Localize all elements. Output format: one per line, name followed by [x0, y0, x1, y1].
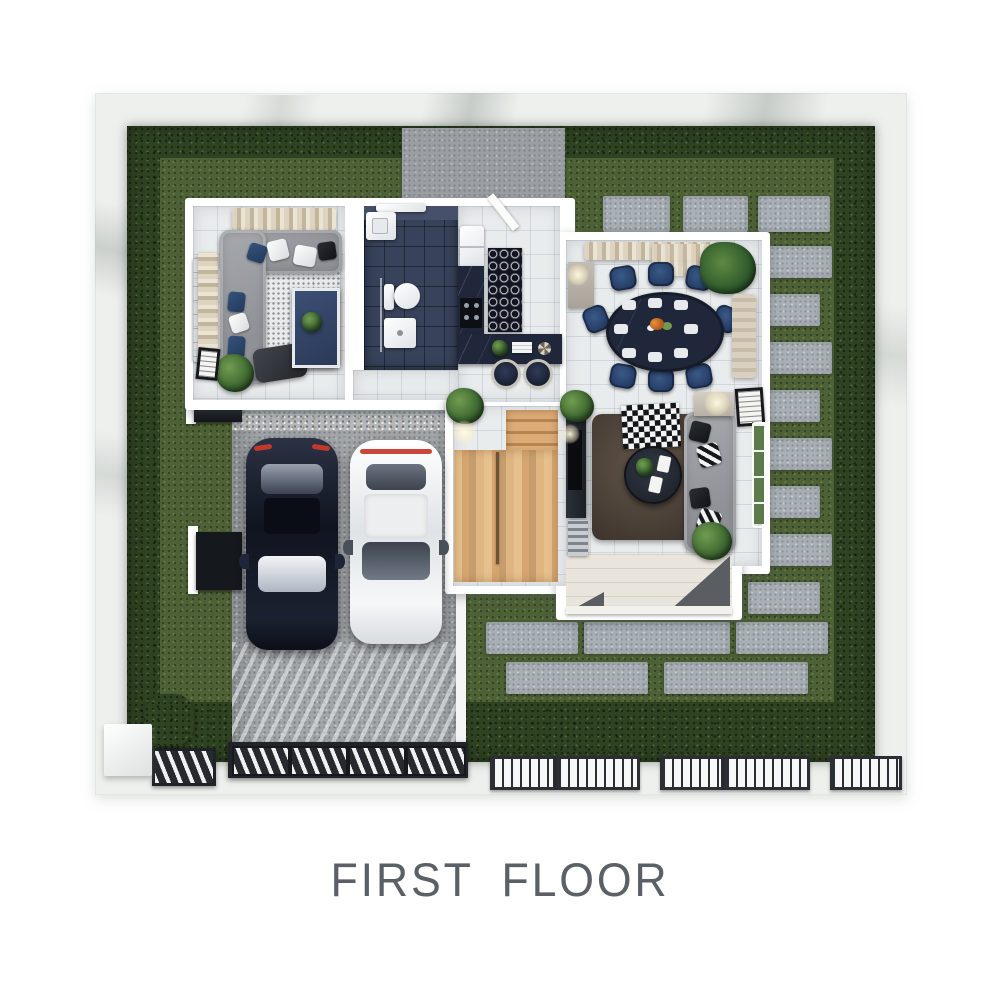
porch-step [566, 606, 732, 614]
place-setting [622, 300, 636, 310]
palm-plant [700, 242, 756, 294]
dining-chair [648, 262, 674, 286]
coffee-table-plant [302, 312, 322, 332]
garden-paver [486, 622, 578, 654]
wall-sheen [420, 93, 520, 129]
gate-panel [290, 746, 348, 776]
wall-sheen [873, 300, 907, 410]
pedestrian-gate [152, 748, 216, 786]
fence-panel [660, 756, 724, 790]
kitchen-runner-rug [488, 248, 522, 332]
garden-paver [664, 662, 808, 694]
garden-paver [584, 622, 730, 654]
toilet-tank [384, 284, 394, 310]
dining-wall-art [735, 387, 766, 427]
cooktop-burner [464, 303, 469, 308]
island-bowl [538, 342, 551, 355]
wall-sheen [240, 95, 320, 127]
utility-pad [402, 128, 565, 206]
stepping-stone [683, 196, 748, 232]
cooktop [460, 298, 482, 328]
throw-pillow [317, 241, 337, 261]
table-plant [636, 458, 654, 476]
stepping-stone [760, 342, 832, 374]
car-mirror [343, 540, 353, 555]
wall-sheen [95, 200, 129, 300]
stepping-stone [603, 196, 670, 232]
throw-pillow [227, 291, 246, 313]
car-windshield [362, 542, 430, 580]
stepping-stone [758, 196, 830, 232]
stair-plant [446, 388, 484, 424]
page-title: FIRST FLOOR [25, 852, 975, 907]
garden-paver [736, 622, 828, 654]
family-floor-plant [692, 522, 732, 560]
console-lamp [567, 264, 589, 286]
toilet-bowl [394, 283, 420, 309]
fence-panel [556, 756, 640, 790]
throw-pillow [292, 244, 317, 268]
shower-glass [380, 278, 382, 352]
shower-drain [397, 330, 403, 336]
wall-sheen [700, 93, 830, 129]
book-stack [568, 520, 588, 556]
car-rear-window [261, 464, 323, 494]
family-pillow [689, 487, 712, 510]
car-taillight [312, 444, 331, 451]
driveway-gate [228, 742, 468, 778]
bar-stool [494, 362, 518, 386]
family-window-frame [752, 422, 768, 528]
stepping-stone [748, 582, 820, 614]
island-plant [492, 340, 508, 356]
driveway-curb [456, 592, 466, 744]
car-taillight [360, 449, 432, 454]
car-dark-navy [246, 438, 338, 650]
fence-panel [830, 756, 902, 790]
gate-panel [232, 746, 290, 776]
stair-landing [454, 450, 558, 582]
macrame-hanging [732, 294, 756, 378]
car-roof [364, 494, 428, 538]
checkered-throw [621, 403, 681, 450]
car-taillight [254, 444, 273, 451]
car-mirror [439, 540, 449, 555]
bar-stool [526, 362, 550, 386]
car-rear-window [366, 464, 426, 490]
gate-panel [406, 746, 466, 776]
tv-console-plant [560, 390, 594, 422]
car-windshield [258, 556, 326, 592]
vanity-sink [372, 218, 388, 234]
side-gate [196, 532, 242, 590]
stair-rail [496, 452, 499, 564]
console-accent-lamp [560, 424, 580, 444]
car-mirror [335, 554, 345, 569]
car-mirror [239, 554, 249, 569]
living-wall-art [195, 347, 220, 381]
side-table-lamp [704, 390, 730, 416]
hallway-floor [353, 370, 458, 400]
stepping-stone [760, 246, 832, 278]
living-floor-plant [216, 354, 254, 392]
living-curtain-north [232, 208, 336, 230]
floor-plan-canvas: FIRST FLOOR [0, 0, 1000, 1000]
fence-panel [490, 756, 556, 790]
bathroom-window [376, 204, 426, 212]
driveway-ramp-stripes [232, 642, 462, 746]
utility-box [104, 724, 152, 776]
car-sunroof [264, 498, 320, 534]
stepping-stone [760, 438, 832, 470]
stair-pendant-light [452, 420, 476, 444]
carport-gravel-strip [232, 414, 462, 430]
gate-panel [348, 746, 406, 776]
family-coffee-table [624, 446, 682, 504]
car-white [350, 440, 442, 644]
fence-panel [724, 756, 810, 790]
wall-sheen [95, 430, 129, 520]
table-centerpiece [650, 318, 664, 330]
garden-paver [506, 662, 648, 694]
island-books [512, 342, 532, 353]
fridge-door-line [460, 246, 484, 248]
stepping-stone [760, 534, 832, 566]
